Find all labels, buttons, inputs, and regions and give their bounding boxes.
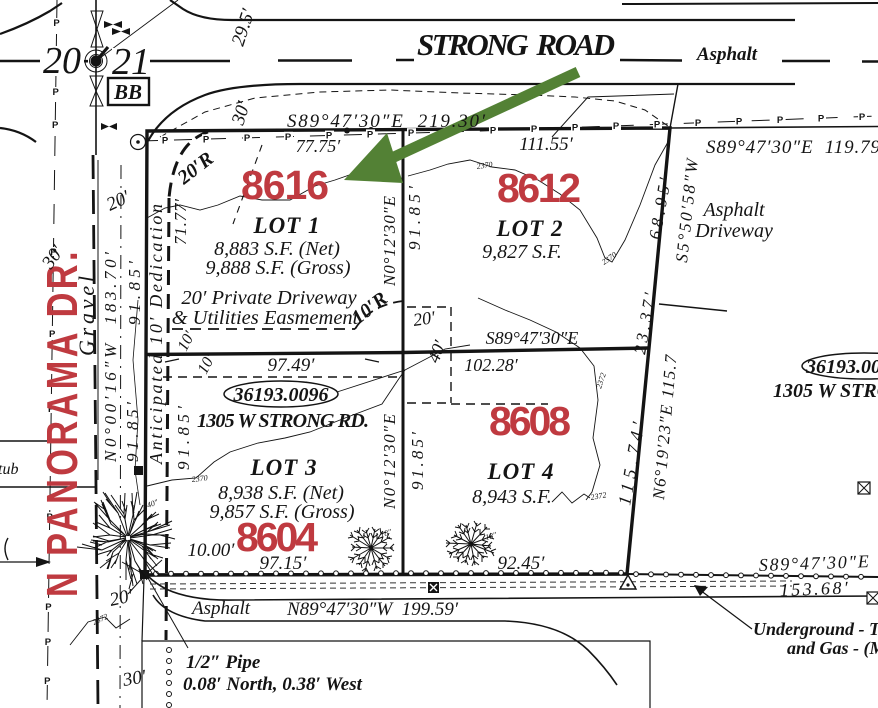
svg-text:BB: BB: [113, 80, 142, 104]
svg-text:8608: 8608: [489, 398, 571, 444]
svg-text:P: P: [654, 120, 661, 131]
svg-text:P: P: [44, 676, 51, 687]
svg-text:& Utilities Easmement: & Utilities Easmement: [172, 307, 360, 329]
svg-text:P: P: [859, 112, 866, 123]
svg-text:8616: 8616: [241, 162, 329, 208]
svg-text:2370: 2370: [191, 473, 208, 484]
svg-text:P: P: [572, 123, 579, 134]
svg-text:P: P: [285, 132, 292, 143]
svg-text:S89°47′30″E: S89°47′30″E: [758, 551, 869, 575]
svg-text:97.49′: 97.49′: [268, 355, 316, 376]
svg-text:92.45′: 92.45′: [498, 553, 546, 574]
svg-text:20′ Private Driveway: 20′ Private Driveway: [181, 287, 357, 309]
svg-text:P: P: [736, 116, 743, 127]
svg-text:tub: tub: [0, 461, 18, 478]
svg-text:P: P: [53, 87, 60, 98]
svg-text:9,888 S.F. (Gross): 9,888 S.F. (Gross): [205, 257, 350, 279]
svg-text:8,943 S.F.: 8,943 S.F.: [472, 486, 552, 508]
svg-text:N89°47′30″W 199.59′: N89°47′30″W 199.59′: [286, 599, 459, 620]
svg-text:Gravel: Gravel: [74, 276, 99, 356]
svg-text:36193.00: 36193.00: [805, 356, 878, 378]
svg-text:30′: 30′: [120, 666, 148, 691]
svg-text:LOT 2: LOT 2: [496, 216, 564, 241]
svg-text:Asphalt: Asphalt: [696, 44, 758, 65]
svg-text:P: P: [244, 133, 251, 144]
svg-text:21: 21: [112, 41, 150, 83]
svg-text:71.77′: 71.77′: [171, 199, 190, 245]
svg-text:1305 W STRONG RD.: 1305 W STRONG RD.: [197, 410, 369, 432]
svg-text:1/2″ Pipe: 1/2″ Pipe: [186, 652, 261, 673]
svg-text:8612: 8612: [497, 165, 581, 211]
svg-text:111.55′: 111.55′: [519, 134, 573, 155]
svg-text:STRONG ROAD: STRONG ROAD: [417, 27, 617, 62]
svg-text:P: P: [45, 602, 52, 613]
svg-text:P: P: [52, 120, 59, 131]
svg-text:P: P: [203, 134, 210, 145]
svg-text:97.15′: 97.15′: [260, 553, 308, 574]
svg-text:LOT 4: LOT 4: [487, 459, 555, 484]
svg-text:P: P: [695, 118, 702, 129]
svg-text:N0°12′30″E: N0°12′30″E: [380, 413, 399, 510]
svg-text:P: P: [777, 115, 784, 126]
svg-text:0.08′ North, 0.38′ West: 0.08′ North, 0.38′ West: [183, 674, 363, 695]
svg-text:102.28′: 102.28′: [464, 355, 519, 375]
svg-text:1305 W STRON: 1305 W STRON: [773, 380, 878, 402]
svg-text:P: P: [818, 113, 825, 124]
svg-text:20: 20: [43, 40, 81, 82]
svg-text:Asphalt: Asphalt: [190, 598, 251, 619]
svg-text:S89°47′30″E 219.30′: S89°47′30″E 219.30′: [287, 111, 486, 132]
svg-text:P: P: [490, 126, 497, 137]
svg-text:36193.0096: 36193.0096: [233, 384, 329, 406]
svg-text:LOT 3: LOT 3: [250, 455, 318, 480]
svg-text:and Gas - (M: and Gas - (M: [787, 638, 878, 659]
svg-text:P: P: [45, 637, 52, 648]
svg-text:20′: 20′: [412, 307, 438, 330]
svg-text:S89°47′30″E: S89°47′30″E: [486, 328, 579, 348]
svg-text:P: P: [53, 18, 60, 29]
svg-text:10.00′: 10.00′: [188, 540, 236, 561]
svg-text:P: P: [162, 136, 169, 147]
svg-text:9,827 S.F.: 9,827 S.F.: [482, 241, 562, 263]
svg-text:Driveway: Driveway: [694, 220, 773, 242]
svg-text:P: P: [613, 121, 620, 132]
svg-text:77.75′: 77.75′: [296, 136, 342, 156]
svg-text:Underground - Tel: Underground - Tel: [753, 619, 878, 639]
svg-text:LOT 1: LOT 1: [253, 213, 321, 238]
svg-text:Asphalt: Asphalt: [701, 199, 765, 221]
svg-text:N0°12′30″E: N0°12′30″E: [380, 195, 399, 287]
svg-text:S89°47′30″E 119.79: S89°47′30″E 119.79: [706, 137, 878, 158]
